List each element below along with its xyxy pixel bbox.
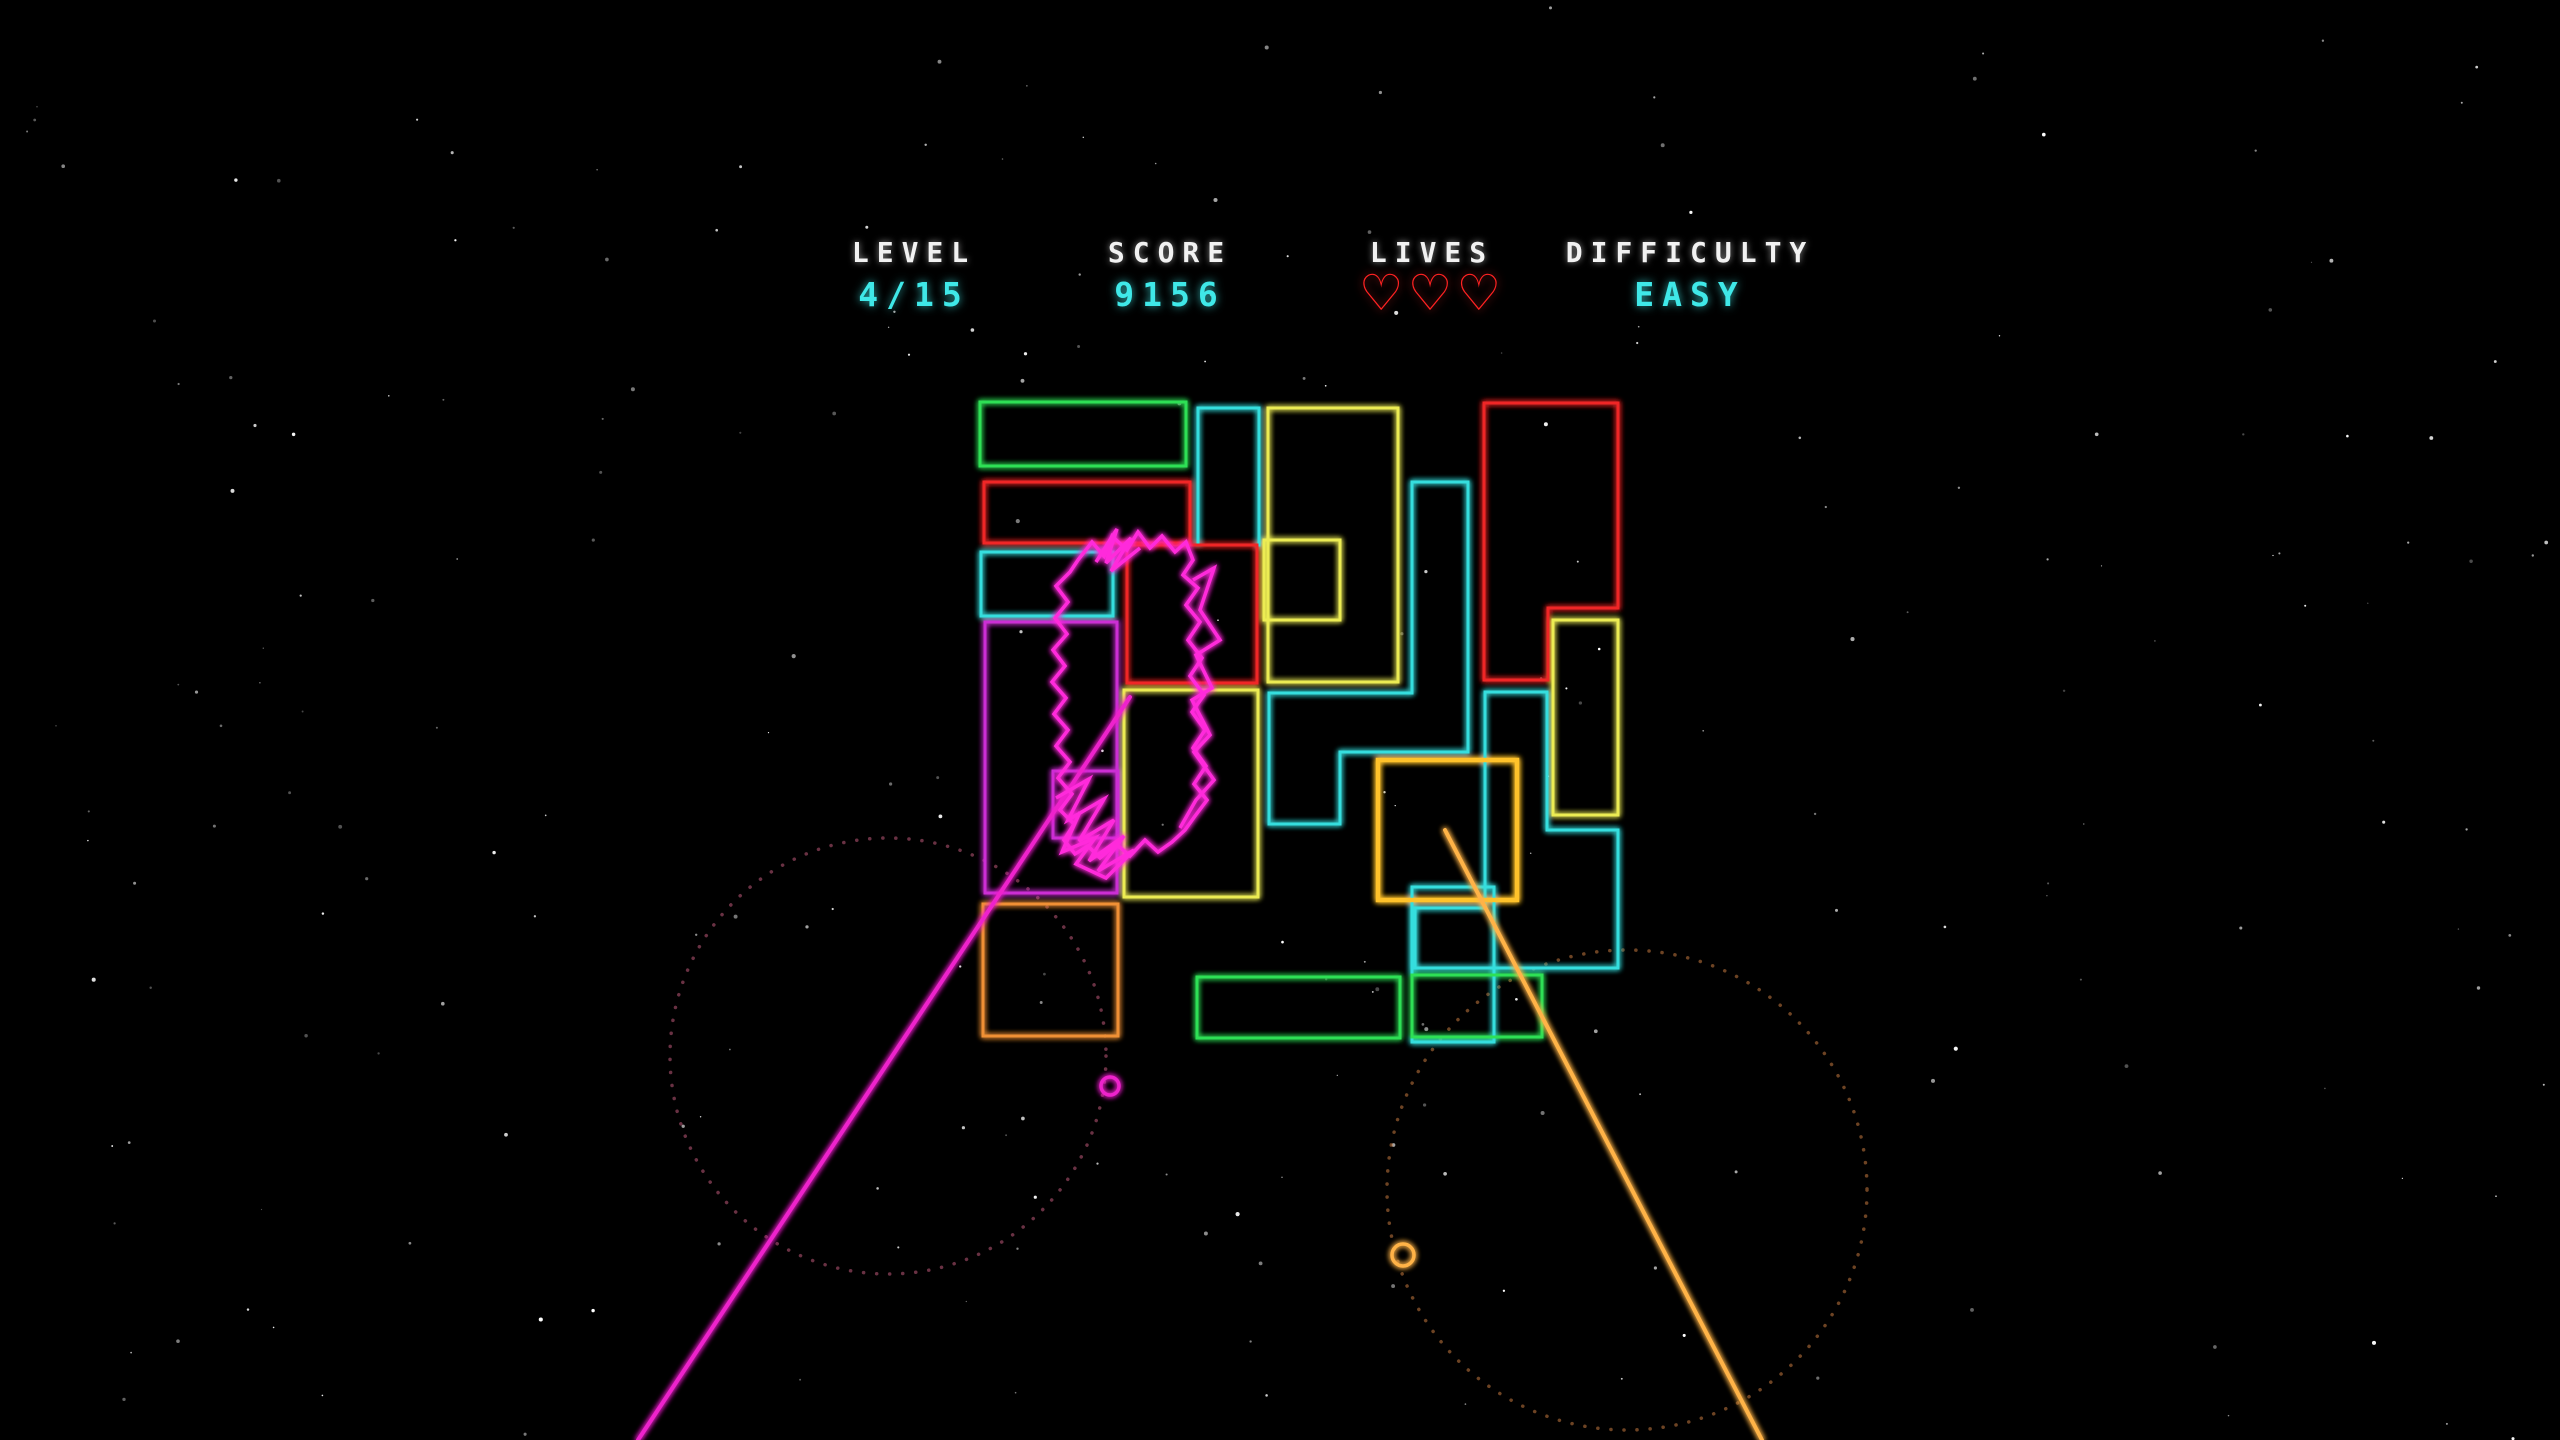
star <box>602 418 604 420</box>
star <box>908 354 910 356</box>
star <box>1079 273 1081 275</box>
star <box>2228 1415 2230 1417</box>
cyan-rect-bottom <box>1412 887 1494 1042</box>
star <box>195 691 198 694</box>
star <box>1999 335 2000 336</box>
star <box>1259 1261 1263 1265</box>
star <box>1337 1075 1338 1076</box>
star <box>1639 1093 1641 1095</box>
magenta-laser-beam <box>638 697 1130 1440</box>
star <box>451 151 454 154</box>
star <box>1210 293 1213 296</box>
star <box>229 376 232 379</box>
star <box>33 119 36 122</box>
star <box>2465 828 2467 830</box>
star <box>2046 895 2047 896</box>
star <box>1702 730 1704 732</box>
star <box>768 732 769 733</box>
star <box>1465 1403 1467 1405</box>
star <box>2272 555 2273 556</box>
star <box>1954 1047 1958 1051</box>
star <box>1375 987 1379 991</box>
orange-ring-bullet <box>1392 1244 1414 1266</box>
star <box>2101 565 2102 566</box>
star <box>111 1145 113 1147</box>
star <box>261 1209 262 1210</box>
star <box>1005 1134 1007 1136</box>
star <box>2083 823 2084 824</box>
star <box>178 383 180 385</box>
star <box>26 131 28 133</box>
star <box>1424 570 1427 573</box>
green-rect-bottom-a <box>1197 977 1400 1038</box>
star <box>865 226 868 229</box>
star <box>263 648 264 649</box>
effects-layer <box>638 529 1762 1440</box>
star <box>1026 85 1027 86</box>
star <box>1982 52 1984 54</box>
star <box>2242 433 2244 435</box>
star <box>938 60 942 64</box>
star <box>55 725 57 727</box>
star <box>971 328 975 332</box>
star <box>2154 640 2156 642</box>
star <box>2372 1341 2376 1345</box>
star <box>1265 1394 1268 1397</box>
star <box>2063 690 2065 692</box>
star <box>1040 1001 1043 1004</box>
star <box>2047 882 2049 884</box>
star <box>959 965 961 967</box>
star <box>1850 637 1854 641</box>
star <box>377 1052 379 1054</box>
star <box>936 776 939 779</box>
star <box>1162 824 1164 826</box>
gold-square <box>1378 760 1517 900</box>
star <box>729 1049 731 1051</box>
yellow-rect-right <box>1553 620 1618 815</box>
star <box>128 1141 131 1144</box>
star <box>259 682 261 684</box>
star <box>832 908 834 910</box>
star <box>292 433 295 436</box>
star <box>2213 1345 2217 1349</box>
star <box>1544 422 1548 426</box>
dotted-circles-layer <box>670 838 1867 1430</box>
star <box>1816 1377 1819 1380</box>
star <box>300 595 302 597</box>
star <box>416 119 418 121</box>
star <box>539 1317 543 1321</box>
star <box>1654 1266 1657 1269</box>
star <box>805 925 808 928</box>
star <box>247 1308 249 1310</box>
star <box>876 1187 879 1190</box>
star <box>456 558 458 560</box>
star <box>1368 230 1372 234</box>
star <box>1096 1163 1098 1165</box>
star <box>1577 561 1579 563</box>
star <box>388 395 389 396</box>
star <box>2477 986 2480 989</box>
star <box>1372 991 1374 993</box>
star <box>1034 1196 1037 1199</box>
star <box>1549 6 1552 9</box>
red-rect-row2 <box>984 482 1190 543</box>
star <box>2543 1084 2545 1086</box>
star <box>153 319 156 322</box>
star <box>832 412 836 416</box>
star <box>734 915 738 919</box>
star <box>1799 437 1802 440</box>
star <box>897 1246 899 1248</box>
star <box>1204 361 1206 363</box>
star <box>2461 102 2463 104</box>
star <box>409 1242 412 1245</box>
star <box>2382 821 2385 824</box>
maze-layer <box>980 402 1618 1042</box>
star <box>1217 619 1219 621</box>
star <box>2329 259 2333 263</box>
star <box>2446 1423 2448 1425</box>
star <box>2495 1195 2497 1197</box>
star <box>1400 632 1403 635</box>
star <box>253 424 256 427</box>
star <box>2429 436 2433 440</box>
star <box>2239 926 2242 929</box>
star <box>1379 91 1382 94</box>
star <box>2311 262 2312 263</box>
star <box>1077 345 1080 348</box>
star <box>1422 1023 1425 1026</box>
star <box>1016 1248 1018 1250</box>
star <box>605 258 609 262</box>
star <box>1636 342 1638 344</box>
star <box>454 239 456 241</box>
star <box>2278 552 2280 554</box>
star <box>492 851 495 854</box>
star <box>2532 554 2534 556</box>
star <box>2469 559 2472 562</box>
star <box>338 825 342 829</box>
star <box>1043 973 1046 976</box>
magenta-ring-bullet <box>1101 1077 1119 1095</box>
star <box>1638 326 1640 328</box>
star <box>1166 1173 1168 1175</box>
star <box>2494 360 2497 363</box>
star <box>888 327 889 328</box>
star <box>1021 379 1025 383</box>
star <box>1101 750 1104 753</box>
star <box>322 1395 324 1397</box>
yellow-big-rect <box>1268 408 1398 682</box>
star <box>1661 143 1665 147</box>
yellow-notch-rect <box>1264 540 1340 620</box>
star <box>88 810 90 812</box>
star <box>1501 352 1503 354</box>
star <box>1236 1212 1240 1216</box>
star <box>1503 1290 1505 1292</box>
star <box>2125 1064 2129 1068</box>
star <box>113 1222 115 1224</box>
starfield <box>26 6 2548 1440</box>
star <box>1155 163 1157 165</box>
orange-rect <box>983 904 1118 1036</box>
red-l-piece <box>1484 403 1618 680</box>
star <box>1383 791 1385 793</box>
star <box>1541 1111 1545 1115</box>
star <box>1579 701 1582 704</box>
star <box>966 1301 967 1302</box>
playfield-canvas[interactable] <box>0 0 2560 1440</box>
green-rect-bottom-b <box>1412 975 1542 1037</box>
star <box>591 1309 594 1312</box>
star <box>1249 1340 1251 1342</box>
star <box>1907 611 1909 613</box>
star <box>2046 558 2048 560</box>
star <box>889 782 892 785</box>
star <box>2372 740 2374 742</box>
star <box>596 169 597 170</box>
cyan-rect-left <box>981 552 1113 616</box>
orange-dotted-circle <box>1387 950 1867 1430</box>
star <box>1530 852 1532 854</box>
star <box>1931 1079 1935 1083</box>
star <box>799 1379 801 1381</box>
star <box>371 599 374 602</box>
star <box>436 727 438 729</box>
star <box>2508 934 2511 937</box>
star <box>1019 630 1022 633</box>
star <box>176 1339 180 1343</box>
star <box>893 311 895 313</box>
star <box>288 791 291 794</box>
creature-squiggle <box>1096 529 1140 571</box>
star <box>700 1116 701 1117</box>
star <box>2402 1178 2403 1179</box>
star <box>220 725 223 728</box>
star <box>1024 352 1027 355</box>
star <box>2458 928 2459 929</box>
star <box>1565 687 1567 689</box>
star <box>277 179 281 183</box>
star <box>2269 308 2273 312</box>
star <box>322 912 324 914</box>
star <box>1391 1284 1395 1288</box>
star <box>695 934 697 936</box>
star <box>2367 603 2368 604</box>
star <box>1015 1392 1017 1394</box>
star <box>1515 998 1518 1001</box>
star <box>273 1327 275 1329</box>
star <box>1265 45 1269 49</box>
star <box>1825 506 1827 508</box>
star <box>1083 137 1084 138</box>
star <box>2544 541 2548 545</box>
star <box>513 227 515 229</box>
star <box>1303 377 1306 380</box>
star <box>715 229 718 232</box>
star <box>1423 1103 1426 1106</box>
star <box>1213 198 1217 202</box>
star <box>939 815 943 819</box>
star <box>2322 40 2324 42</box>
star <box>682 1125 685 1128</box>
star <box>1683 1334 1686 1337</box>
cyan-z-piece <box>1269 482 1468 824</box>
star <box>524 1433 527 1436</box>
cyan-rect-top <box>1198 408 1259 545</box>
star <box>2080 979 2082 981</box>
star <box>2095 432 2099 436</box>
magenta-rect-big <box>985 622 1117 893</box>
star <box>1281 1177 1282 1178</box>
star <box>2259 704 2262 707</box>
star <box>133 882 136 885</box>
star <box>1970 1308 1974 1312</box>
star <box>504 1133 508 1137</box>
star <box>599 471 602 474</box>
star <box>1735 1170 1738 1173</box>
star <box>739 432 741 434</box>
star <box>592 539 595 542</box>
green-rect-top <box>980 402 1186 466</box>
star <box>2158 1171 2162 1175</box>
star <box>1287 255 1289 257</box>
star <box>130 1352 132 1354</box>
star <box>231 489 235 493</box>
star <box>2407 541 2409 543</box>
star <box>545 815 547 817</box>
star <box>1689 211 1692 214</box>
star <box>1016 519 1020 523</box>
star <box>302 711 304 713</box>
star <box>442 399 444 401</box>
star <box>1958 487 1960 489</box>
star <box>534 915 536 917</box>
star <box>962 1126 965 1129</box>
star <box>1835 909 1838 912</box>
star <box>149 986 151 988</box>
star <box>1395 805 1396 806</box>
star <box>365 877 368 880</box>
star <box>92 978 96 982</box>
star <box>2346 435 2349 438</box>
star <box>1394 311 1398 315</box>
star <box>1021 1117 1025 1121</box>
star <box>1204 1232 1208 1236</box>
star <box>1598 648 1601 651</box>
star <box>1944 926 1947 929</box>
star <box>213 825 216 828</box>
star <box>1973 77 1977 81</box>
game-screen: LEVEL 4/15 SCORE 9156 LIVES ♡♡♡ DIFFICUL… <box>0 0 2560 1440</box>
star <box>177 684 179 686</box>
star <box>1814 813 1816 815</box>
orange-laser-beam <box>1445 830 1762 1440</box>
star <box>792 654 796 658</box>
star <box>2324 1088 2326 1090</box>
star <box>122 1398 125 1401</box>
star <box>1621 1378 1623 1380</box>
star <box>441 1002 445 1006</box>
yellow-rect-mid <box>1124 690 1258 897</box>
star <box>61 164 65 168</box>
star <box>2042 133 2046 137</box>
star <box>2304 605 2306 607</box>
star <box>1424 1027 1428 1031</box>
star <box>2475 66 2478 69</box>
star <box>304 1034 307 1037</box>
star <box>1325 385 1327 387</box>
star <box>1443 1172 1447 1176</box>
star <box>36 106 38 108</box>
star <box>1364 961 1366 963</box>
star <box>1281 941 1284 944</box>
star <box>739 165 742 168</box>
star <box>2255 149 2257 151</box>
star <box>87 840 88 841</box>
star <box>1002 158 1004 160</box>
star <box>1653 96 1655 98</box>
star <box>631 387 635 391</box>
star <box>924 144 926 146</box>
star <box>234 178 237 181</box>
star <box>1594 1029 1598 1033</box>
star <box>717 1242 720 1245</box>
